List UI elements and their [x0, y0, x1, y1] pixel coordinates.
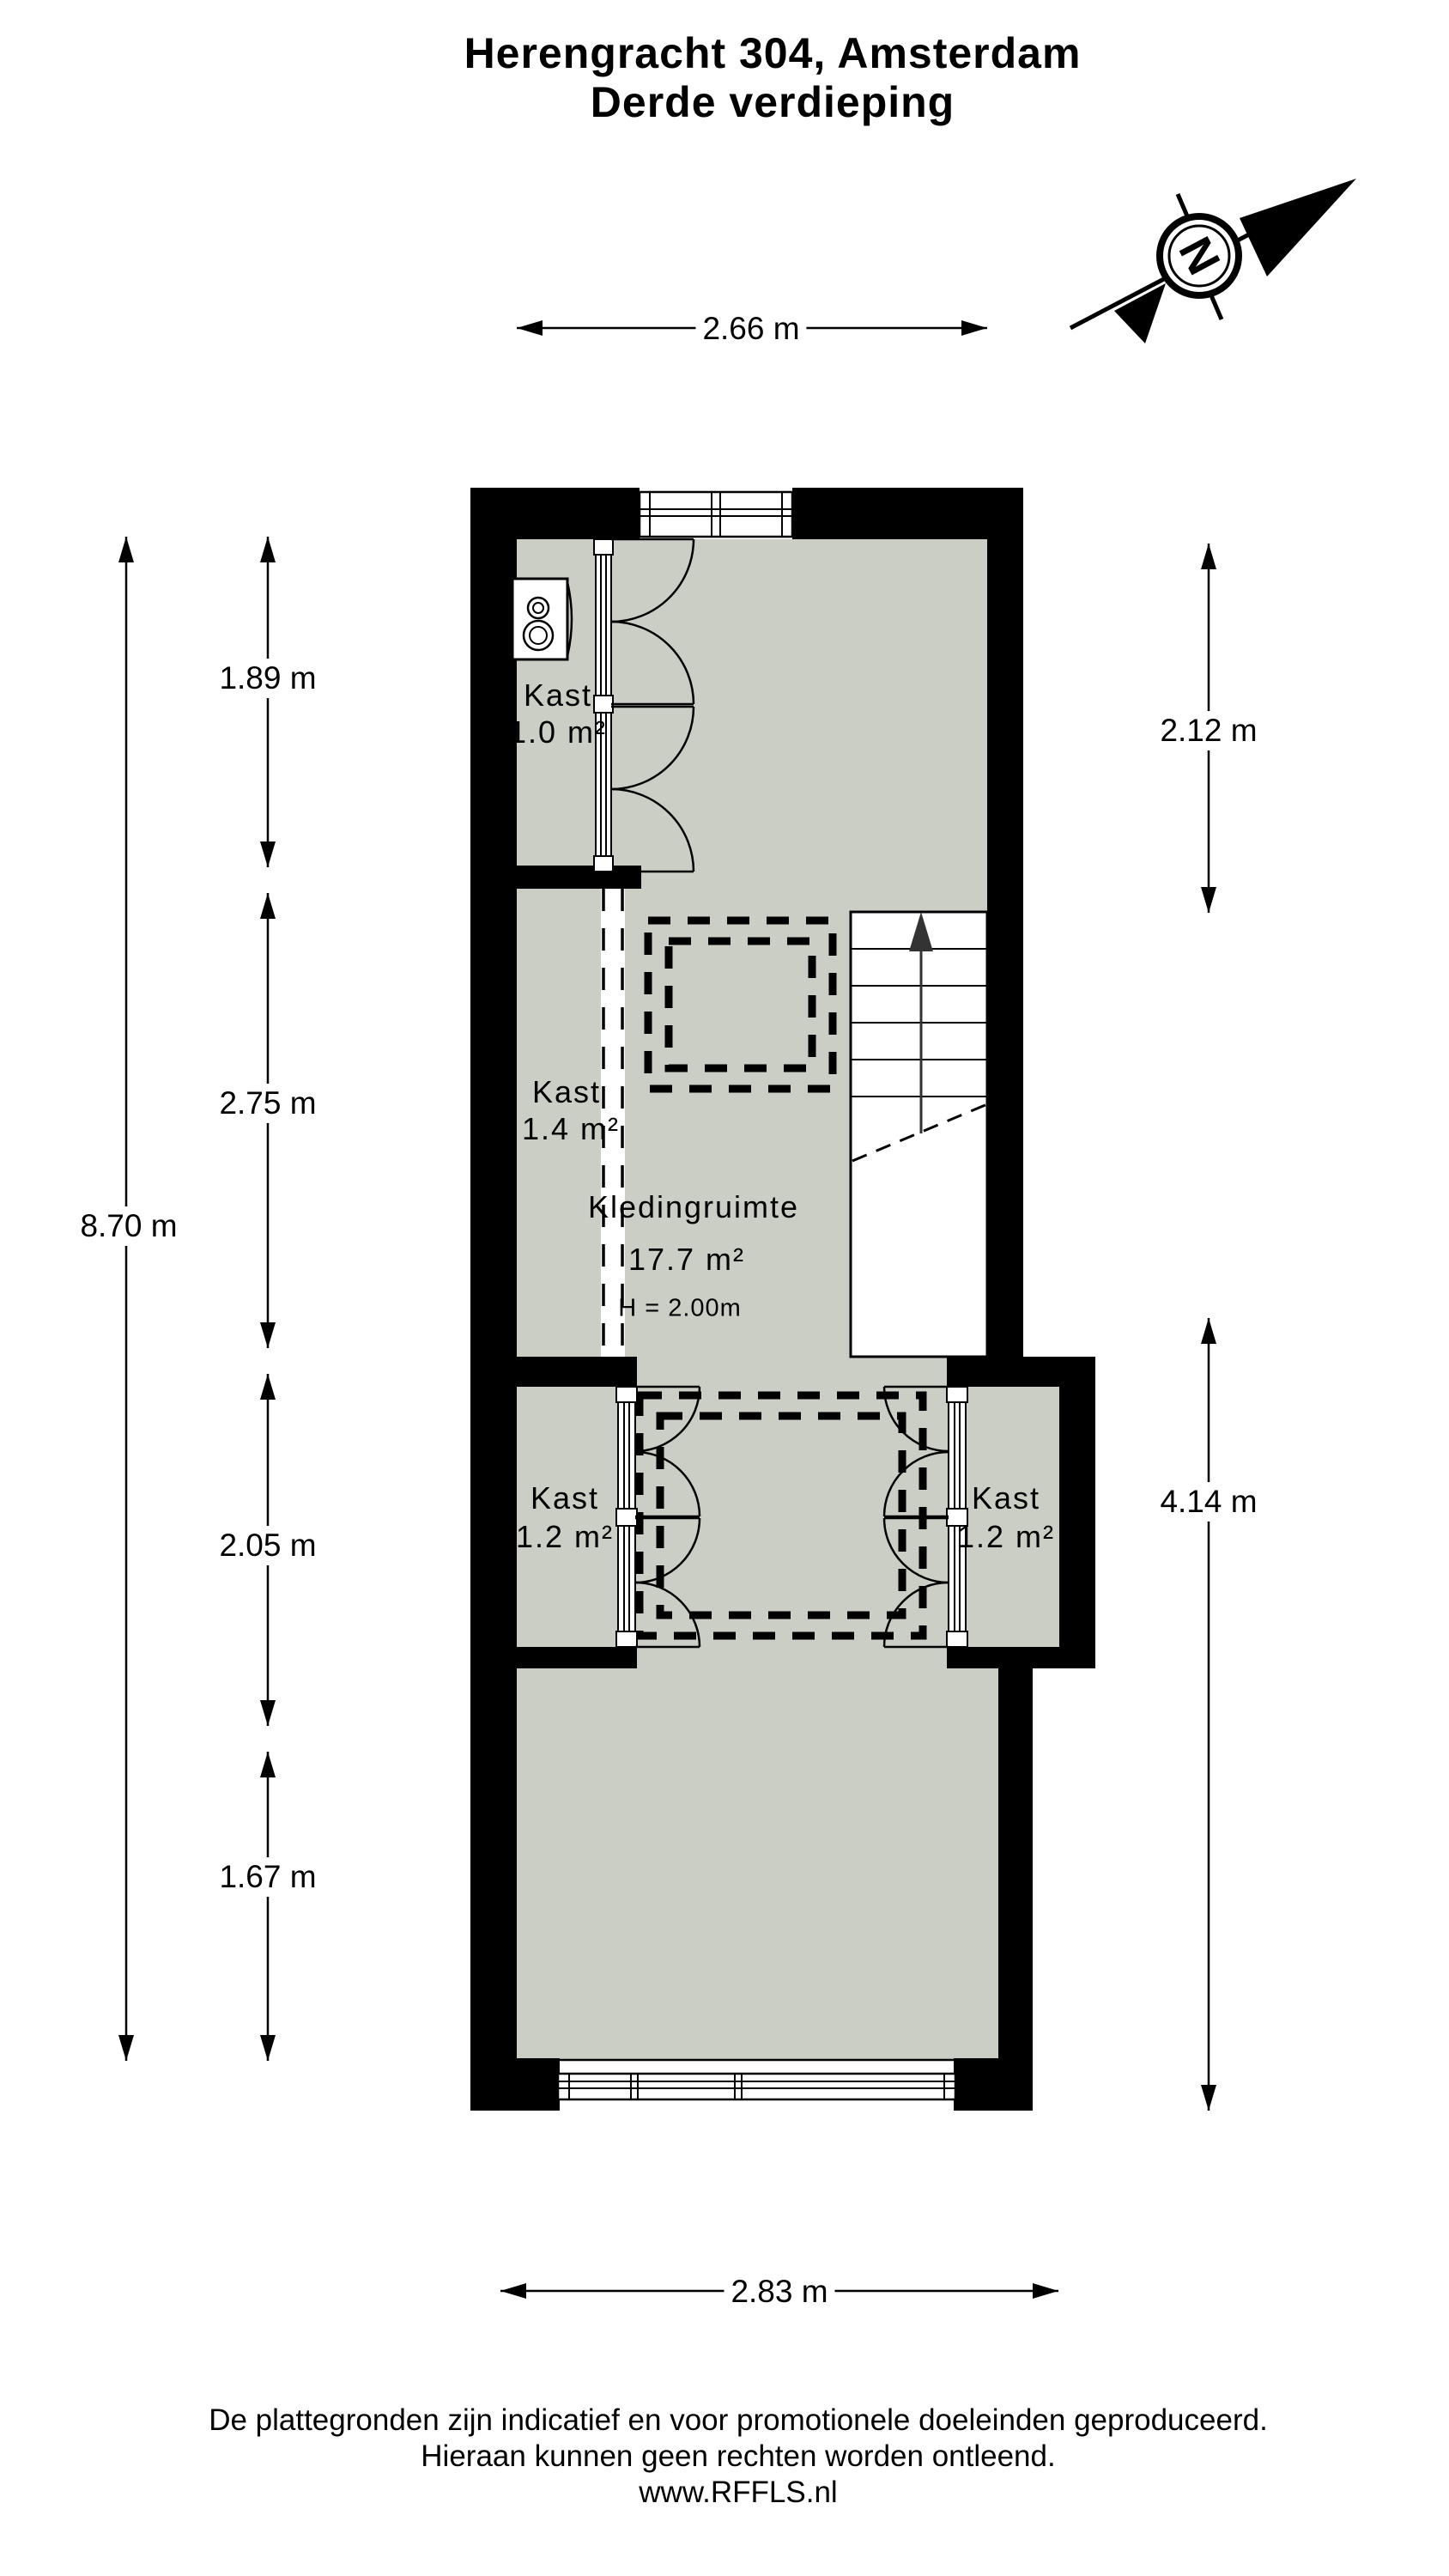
dim-top-width: 2.66 m — [695, 309, 806, 349]
dim-right-top: 2.12 m — [1153, 711, 1264, 750]
dim-right-bottom: 4.14 m — [1153, 1482, 1264, 1522]
room-label-kast-left-area: 1.2 m² — [516, 1518, 614, 1556]
room-label-kast-left-name: Kast — [530, 1479, 599, 1517]
room-label-kast-top-name: Kast — [524, 677, 592, 714]
floorplan-page: { "title": { "line1": "Herengracht 304, … — [0, 0, 1449, 2576]
dim-left-total: 8.70 m — [73, 1206, 184, 1246]
page-subtitle: Derde verdieping — [591, 77, 955, 127]
room-label-kledingruimte-height: H = 2.00m — [618, 1295, 742, 1323]
room-label-kast-mid-name: Kast — [532, 1073, 601, 1111]
boiler-icon — [512, 579, 572, 659]
footer-website: www.RFFLS.nl — [639, 2476, 837, 2510]
footer-disclaimer-line1: De plattegronden zijn indicatief en voor… — [209, 2403, 1268, 2438]
room-label-kast-mid-area: 1.4 m² — [522, 1110, 620, 1148]
floor-plan-drawing — [0, 0, 1449, 2576]
room-label-kast-top-area: 1.0 m² — [509, 714, 607, 751]
window-bottom — [558, 2074, 955, 2099]
dim-left-seg-4: 1.67 m — [212, 1857, 323, 1897]
staircase — [851, 912, 987, 1357]
dim-left-seg-2: 2.75 m — [212, 1084, 323, 1123]
room-label-kast-right-name: Kast — [972, 1479, 1040, 1517]
window-top — [640, 492, 792, 537]
page-title: Herengracht 304, Amsterdam — [464, 28, 1082, 78]
room-label-kledingruimte-name: Kledingruimte — [588, 1188, 799, 1226]
footer-disclaimer-line2: Hieraan kunnen geen rechten worden ontle… — [421, 2439, 1055, 2474]
dim-bottom-width: 2.83 m — [724, 2272, 834, 2312]
room-label-kast-right-area: 1.2 m² — [957, 1518, 1055, 1556]
dim-left-seg-1: 1.89 m — [212, 659, 323, 698]
dim-left-seg-3: 2.05 m — [212, 1526, 323, 1565]
room-label-kledingruimte-area: 17.7 m² — [628, 1241, 745, 1279]
